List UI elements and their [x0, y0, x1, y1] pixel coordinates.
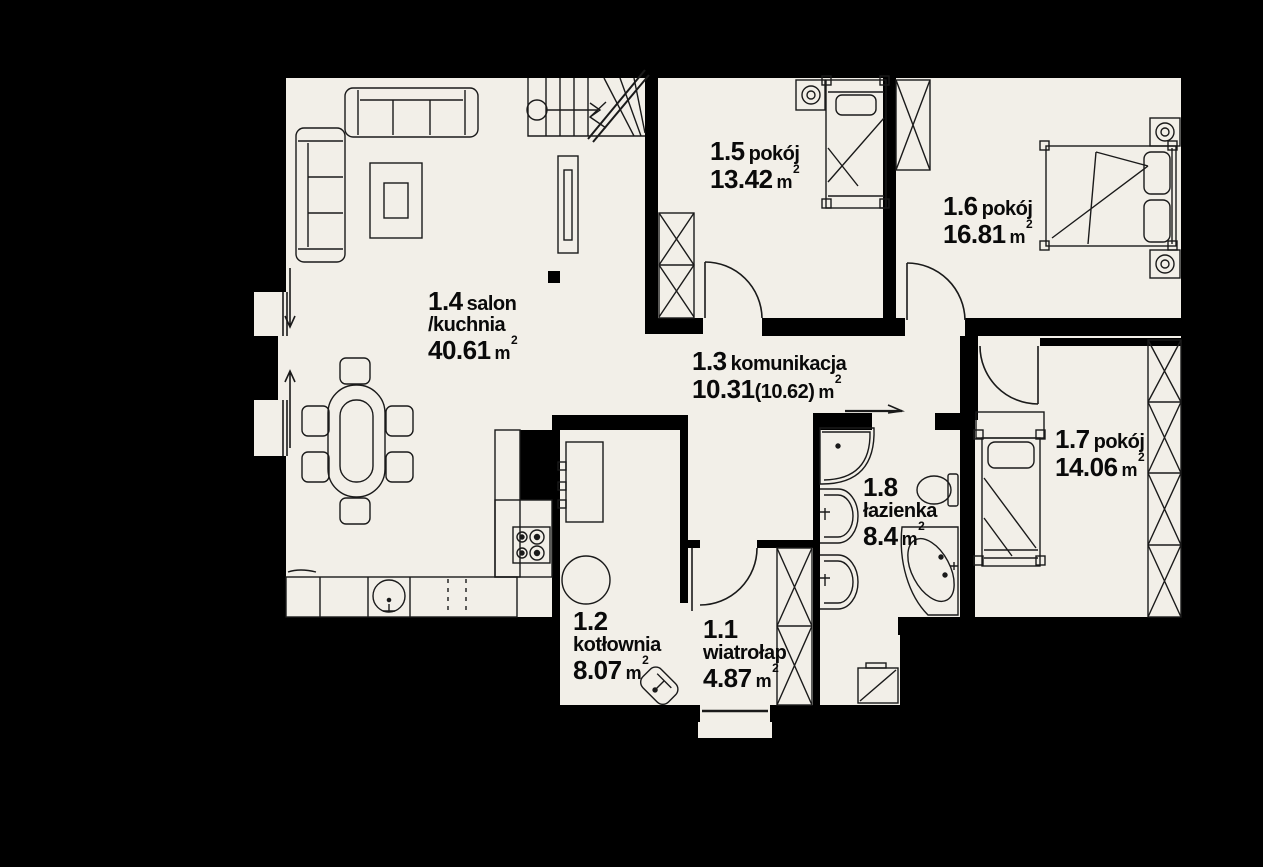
room-area: 40.61: [428, 335, 491, 365]
room-label-1-4: 1.4 salon /kuchnia 40.61 m2: [428, 288, 516, 364]
room-name: komunikacja: [731, 353, 847, 375]
room-label-1-3: 1.3 komunikacja 10.31(10.62) m2: [692, 348, 846, 403]
room-id: 1.2: [573, 606, 608, 636]
room-name: pokój: [749, 143, 800, 165]
room-id: 1.7: [1055, 424, 1090, 454]
room-1-5-region: [658, 78, 883, 318]
room-name: pokój: [982, 198, 1033, 220]
floor-plan-canvas: 1.4 salon /kuchnia 40.61 m2 1.5 pokój 13…: [0, 0, 1263, 867]
room-area-alt: (10.62): [755, 381, 815, 403]
room-id: 1.4: [428, 286, 463, 316]
room-area: 8.4: [863, 521, 898, 551]
room-name-2: /kuchnia: [428, 315, 516, 336]
room-1-6-region: [896, 78, 1181, 318]
room-area: 14.06: [1055, 452, 1118, 482]
room-label-1-7: 1.7 pokój 14.06 m2: [1055, 426, 1144, 481]
room-id: 1.6: [943, 191, 978, 221]
room-name: łazienka: [863, 501, 937, 522]
room-area: 10.31: [692, 374, 755, 404]
room-label-1-8: 1.8 łazienka 8.4 m2: [863, 474, 937, 550]
room-area: 4.87: [703, 663, 752, 693]
room-name: salon: [467, 293, 517, 315]
room-id: 1.5: [710, 136, 745, 166]
room-label-1-6: 1.6 pokój 16.81 m2: [943, 193, 1032, 248]
room-id: 1.3: [692, 346, 727, 376]
room-area: 8.07: [573, 655, 622, 685]
room-id: 1.1: [703, 614, 738, 644]
room-area: 16.81: [943, 219, 1006, 249]
room-label-1-2: 1.2 kotłownia 8.07 m2: [573, 608, 661, 684]
room-id: 1.8: [863, 472, 898, 502]
room-name: pokój: [1094, 431, 1145, 453]
room-label-1-5: 1.5 pokój 13.42 m2: [710, 138, 799, 193]
room-area: 13.42: [710, 164, 773, 194]
room-label-1-1: 1.1 wiatrołap 4.87 m2: [703, 616, 786, 692]
